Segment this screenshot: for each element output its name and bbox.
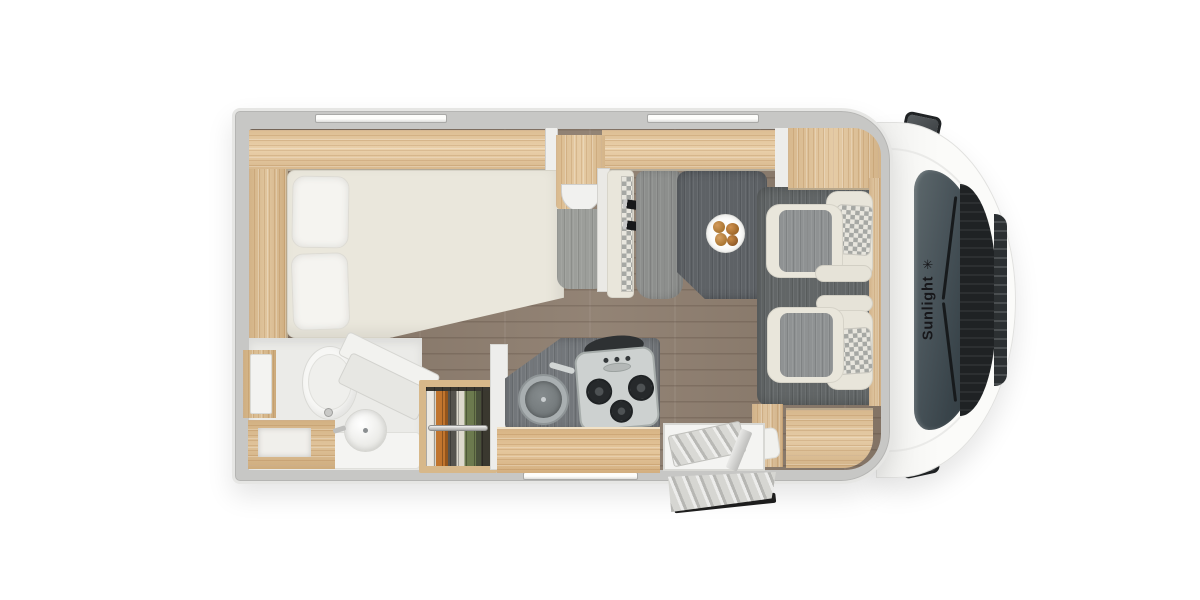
- dinette-base-cabinet: [786, 408, 873, 468]
- stove-knob-icon: [603, 358, 608, 363]
- kitchen-drawer-unit: [497, 427, 660, 473]
- swivel-seat-left-cushion-center: [779, 210, 832, 272]
- vanity-recess: [258, 428, 311, 457]
- bathroom-cabinet-door: [250, 354, 272, 414]
- stove-burner-icon: [585, 377, 613, 405]
- clothes-rail-icon: [428, 425, 488, 431]
- stove-grill-icon: [603, 362, 632, 373]
- kitchen-sink-drain-icon: [541, 397, 546, 402]
- toilet-flush-button-icon: [324, 408, 333, 417]
- bread-roll-icon: [727, 235, 738, 246]
- overhead-cabinet-mid: [602, 130, 777, 171]
- bread-roll-icon: [715, 233, 727, 246]
- stove-knob-icon: [614, 357, 619, 362]
- travel-bench-backrest: [636, 171, 683, 299]
- washbasin-drain-icon: [363, 428, 368, 433]
- pillow-bottom: [291, 252, 351, 331]
- roof-window-rear: [315, 114, 447, 123]
- brand-logo-text: Sunlight: [920, 276, 936, 340]
- pillow-top: [291, 176, 349, 249]
- brand-logo: Sunlight ✳: [920, 234, 937, 366]
- stove-burner-icon: [609, 399, 634, 424]
- swivel-seat-left-armrest: [815, 265, 872, 282]
- plate: [706, 214, 745, 253]
- cab-grille-icon: [994, 214, 1007, 386]
- overhead-cabinet-rear: [249, 130, 547, 171]
- stove: [574, 346, 661, 433]
- wardrobe: [419, 380, 497, 473]
- bread-roll-icon: [726, 223, 739, 235]
- stove-knob-icon: [625, 356, 630, 361]
- wall-window-bottom: [523, 472, 638, 480]
- dinette-overhead-cabinet: [788, 128, 881, 190]
- roof-window-front: [647, 114, 759, 123]
- swivel-seat-right-cushion-center: [780, 313, 833, 377]
- bread-roll-icon: [713, 221, 725, 233]
- stove-burner-icon: [627, 374, 655, 402]
- sun-logo-icon: ✳: [920, 259, 936, 270]
- bedside-shelf: [249, 169, 288, 340]
- travel-bench-fabric: [621, 176, 633, 292]
- motorhome-floorplan: Sunlight ✳: [0, 0, 1200, 600]
